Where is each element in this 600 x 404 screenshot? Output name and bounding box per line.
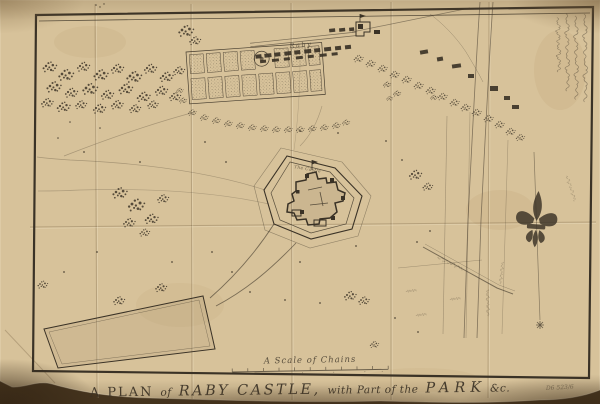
scale-label: A Scale of Chains	[263, 355, 357, 367]
map-canvas: Raby	[0, 0, 600, 404]
map-photograph: Raby	[0, 0, 600, 404]
star-icon	[536, 321, 544, 329]
